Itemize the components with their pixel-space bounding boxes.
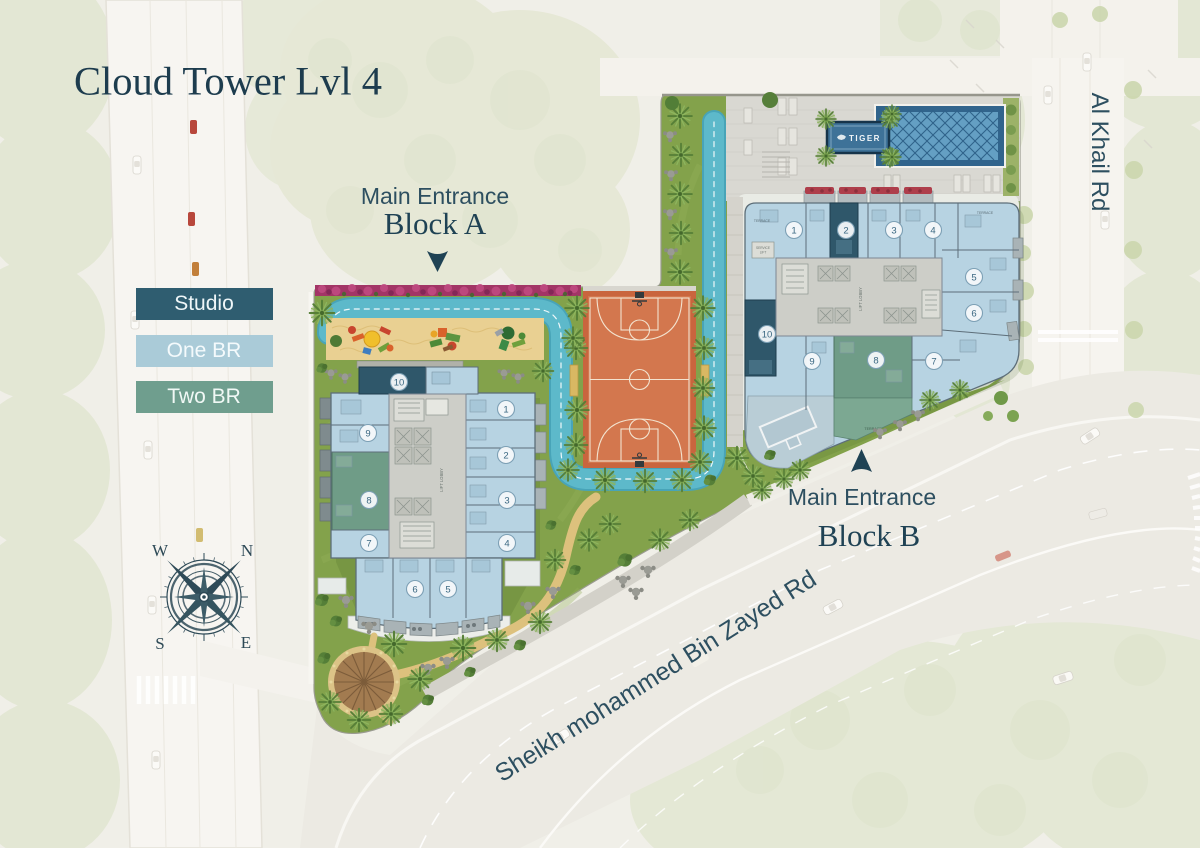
svg-text:N: N: [241, 541, 253, 560]
svg-text:7: 7: [366, 539, 371, 550]
svg-text:6: 6: [412, 585, 417, 596]
svg-text:Main Entrance: Main Entrance: [788, 484, 936, 510]
svg-text:TERRACE: TERRACE: [977, 211, 994, 215]
svg-text:10: 10: [394, 378, 405, 389]
svg-text:Studio: Studio: [174, 292, 234, 315]
svg-text:W: W: [152, 541, 169, 560]
svg-text:LIFT LOBBY: LIFT LOBBY: [439, 468, 444, 492]
svg-text:1: 1: [791, 226, 796, 237]
svg-text:Block B: Block B: [818, 518, 920, 553]
svg-text:4: 4: [930, 226, 935, 237]
svg-text:6: 6: [971, 309, 976, 320]
svg-text:Al Khail Rd: Al Khail Rd: [1086, 93, 1113, 212]
svg-text:8: 8: [366, 496, 371, 507]
svg-text:9: 9: [809, 357, 814, 368]
svg-text:2: 2: [503, 451, 508, 462]
svg-text:2: 2: [843, 226, 848, 237]
svg-text:SERVICE: SERVICE: [756, 246, 770, 250]
svg-text:TERRACE: TERRACE: [754, 219, 771, 223]
svg-text:5: 5: [971, 273, 976, 284]
svg-text:TIGER: TIGER: [849, 134, 881, 143]
svg-text:4: 4: [504, 539, 509, 550]
svg-text:3: 3: [504, 496, 509, 507]
svg-text:8: 8: [873, 356, 878, 367]
svg-text:E: E: [241, 633, 251, 652]
svg-text:Two BR: Two BR: [167, 385, 241, 408]
svg-text:One BR: One BR: [167, 339, 242, 362]
svg-text:Block A: Block A: [384, 206, 487, 241]
svg-text:7: 7: [931, 357, 936, 368]
svg-text:Cloud Tower Lvl 4: Cloud Tower Lvl 4: [74, 59, 382, 104]
svg-text:10: 10: [762, 330, 773, 341]
svg-text:3: 3: [891, 226, 896, 237]
svg-text:LIFT: LIFT: [760, 251, 767, 255]
svg-text:S: S: [155, 634, 164, 653]
svg-text:1: 1: [503, 405, 508, 416]
svg-text:9: 9: [365, 429, 370, 440]
svg-text:LIFT LOBBY: LIFT LOBBY: [858, 287, 863, 311]
svg-text:5: 5: [445, 585, 450, 596]
